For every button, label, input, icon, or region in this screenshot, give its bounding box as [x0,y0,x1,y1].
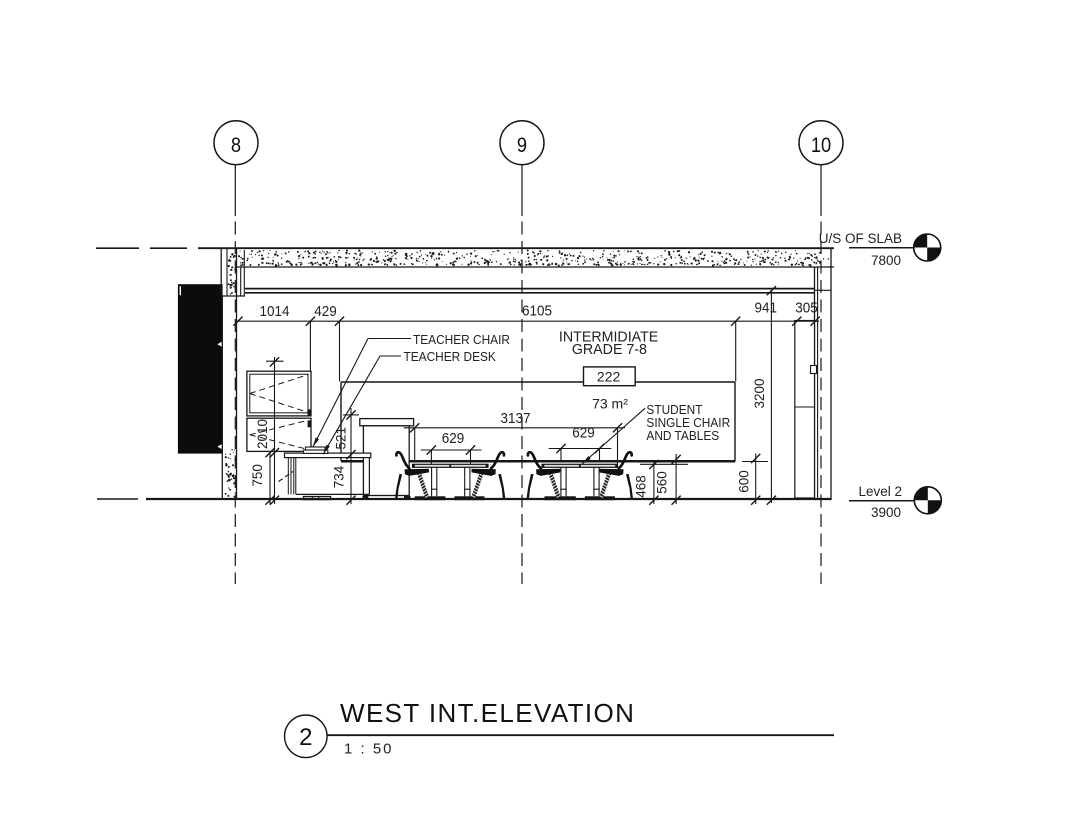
svg-text:3200: 3200 [752,378,767,408]
svg-text:2010: 2010 [255,419,270,449]
svg-text:9: 9 [517,133,527,157]
svg-text:750: 750 [250,464,265,487]
svg-text:941: 941 [755,299,778,316]
svg-text:Level 2: Level 2 [858,484,902,499]
svg-text:TEACHER CHAIR: TEACHER CHAIR [413,332,510,347]
svg-text:1014: 1014 [259,303,289,320]
svg-text:WEST INT.ELEVATION: WEST INT.ELEVATION [340,698,635,728]
svg-text:GRADE 7-8: GRADE 7-8 [572,342,647,358]
svg-text:TEACHER DESK: TEACHER DESK [404,349,497,364]
svg-text:600: 600 [736,470,751,493]
svg-text:3137: 3137 [500,410,530,427]
svg-text:1 : 50: 1 : 50 [344,741,394,758]
svg-text:222: 222 [597,369,621,385]
svg-text:629: 629 [442,430,465,447]
svg-text:3900: 3900 [871,505,901,520]
svg-text:AND TABLES: AND TABLES [646,428,719,443]
svg-text:6105: 6105 [522,302,552,319]
svg-text:468: 468 [634,475,649,498]
svg-text:7800: 7800 [871,253,901,268]
svg-text:734: 734 [331,465,346,488]
svg-text:629: 629 [572,424,595,441]
svg-text:305: 305 [795,299,818,316]
svg-text:2: 2 [299,724,312,751]
svg-text:10: 10 [811,133,831,157]
svg-text:U/S OF SLAB: U/S OF SLAB [819,231,902,246]
svg-text:521: 521 [334,427,349,450]
svg-text:8: 8 [231,133,241,157]
svg-text:73 m²: 73 m² [592,396,628,412]
svg-text:560: 560 [655,471,670,494]
svg-text:429: 429 [314,303,337,320]
